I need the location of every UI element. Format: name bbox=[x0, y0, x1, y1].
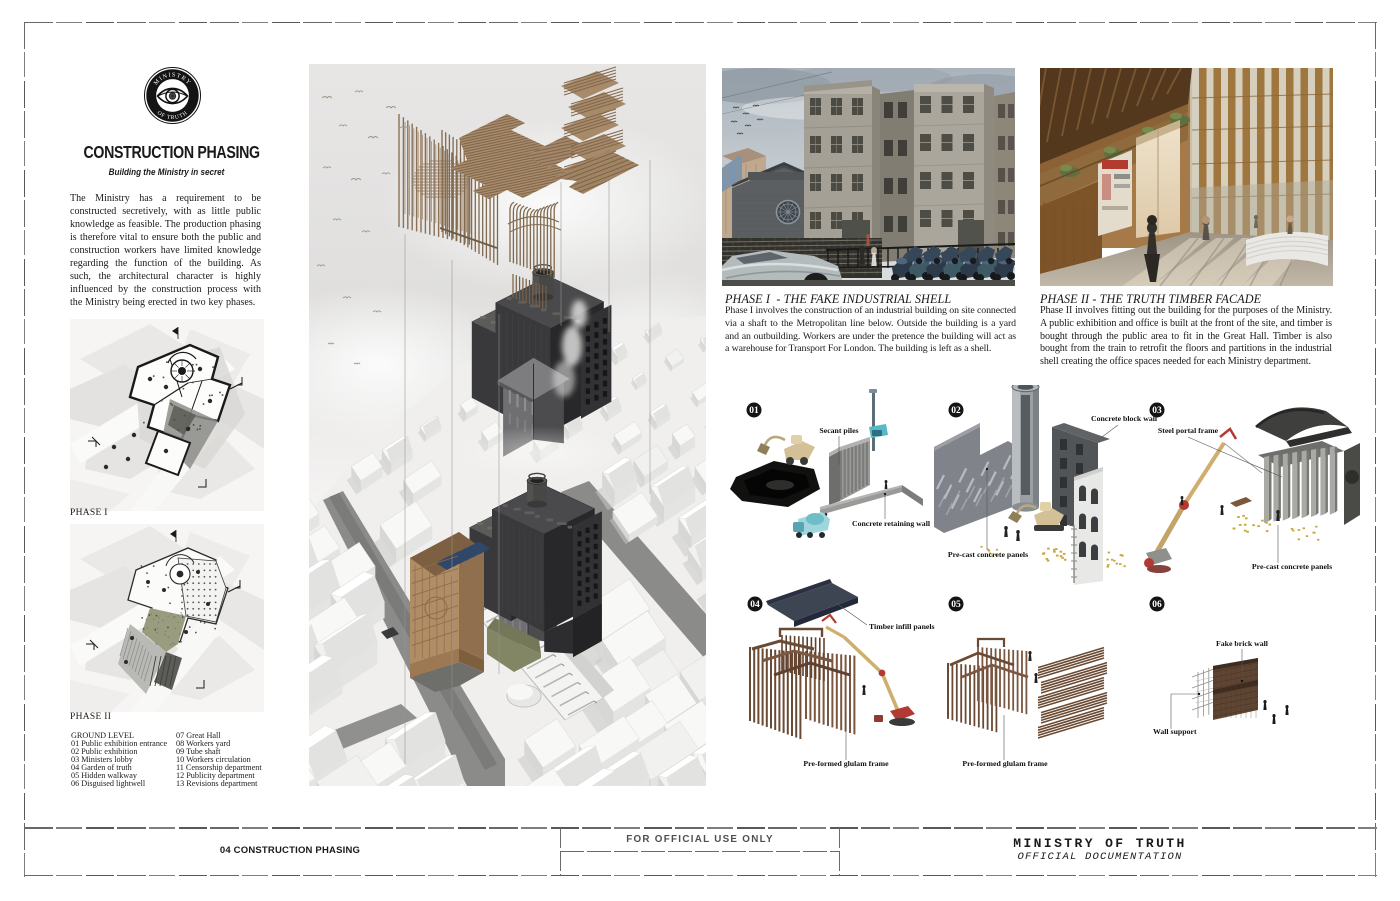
svg-text:04: 04 bbox=[750, 600, 760, 610]
svg-text:05: 05 bbox=[951, 600, 961, 610]
svg-text:02: 02 bbox=[951, 406, 961, 416]
svg-text:Secant piles: Secant piles bbox=[819, 426, 858, 435]
svg-text:03: 03 bbox=[1152, 406, 1162, 416]
svg-text:Wall support: Wall support bbox=[1153, 727, 1197, 736]
svg-text:01: 01 bbox=[749, 406, 759, 416]
svg-text:Pre-cast concrete panels: Pre-cast concrete panels bbox=[948, 550, 1028, 559]
svg-text:Steel portal frame: Steel portal frame bbox=[1158, 426, 1219, 435]
svg-text:Concrete block wall: Concrete block wall bbox=[1091, 414, 1158, 423]
svg-text:Pre-formed glulam frame: Pre-formed glulam frame bbox=[962, 759, 1048, 768]
svg-text:Fake brick wall: Fake brick wall bbox=[1216, 639, 1269, 648]
svg-text:Pre-cast concrete panels: Pre-cast concrete panels bbox=[1252, 562, 1332, 571]
svg-text:06: 06 bbox=[1152, 600, 1162, 610]
svg-text:Pre-formed glulam frame: Pre-formed glulam frame bbox=[803, 759, 889, 768]
svg-text:Concrete retaining wall: Concrete retaining wall bbox=[852, 519, 931, 528]
svg-text:Timber infill panels: Timber infill panels bbox=[869, 622, 935, 631]
